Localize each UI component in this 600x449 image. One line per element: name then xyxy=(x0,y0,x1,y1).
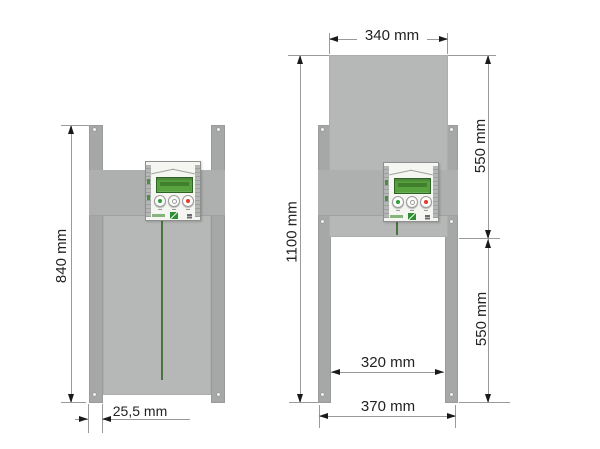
arrow-right-icon xyxy=(447,413,456,419)
white-dot-icon xyxy=(172,199,177,204)
white-dot-icon xyxy=(410,200,415,205)
guide-rail-left xyxy=(89,125,103,403)
dimension-label-550-upper: 550 mm xyxy=(473,113,489,179)
house-roof-icon xyxy=(172,169,195,175)
brand-text xyxy=(152,214,165,217)
dimension-label-840: 840 mm xyxy=(54,224,70,288)
extension-line xyxy=(459,238,500,239)
dimension-line xyxy=(102,419,190,420)
dimension-label-1100: 1100 mm xyxy=(285,195,301,270)
mounting-hole xyxy=(321,128,324,131)
open-button xyxy=(154,195,166,207)
dimension-label-340: 340 mm xyxy=(357,28,427,44)
house-roof-icon xyxy=(151,169,174,175)
mounting-hole xyxy=(93,128,96,131)
lcd-text xyxy=(398,183,427,187)
dimension-label-320: 320 mm xyxy=(353,355,423,371)
mounting-hole xyxy=(450,128,453,131)
mounting-hole xyxy=(217,128,220,131)
dimension-label-25-5: 25,5 mm xyxy=(106,403,174,419)
lcd-display xyxy=(394,178,431,194)
control-unit xyxy=(145,161,201,221)
dimension-drawing: 840 mm 25,5 mm xyxy=(0,0,600,449)
button-label xyxy=(158,209,162,210)
mounting-hole xyxy=(321,393,324,396)
mounting-hole xyxy=(321,220,324,223)
button-label xyxy=(396,210,400,211)
mounting-hole xyxy=(450,393,453,396)
dimension-label-370: 370 mm xyxy=(353,399,423,415)
lcd-display xyxy=(156,177,193,193)
arrow-up-icon xyxy=(485,239,491,248)
dimension-line xyxy=(331,372,444,373)
guide-rail-right xyxy=(211,125,225,403)
mounting-hole xyxy=(217,393,220,396)
mounting-hole xyxy=(93,393,96,396)
arrow-left-icon xyxy=(329,36,338,42)
mounting-hole xyxy=(450,220,453,223)
red-dot-icon xyxy=(424,200,428,204)
arrow-left-icon xyxy=(319,413,328,419)
arrow-up-icon xyxy=(68,125,74,134)
arrow-up-icon xyxy=(485,55,491,64)
extension-line xyxy=(61,125,89,126)
arrow-up-icon xyxy=(297,55,303,64)
arrow-right-icon xyxy=(435,369,444,375)
brand-text xyxy=(390,215,403,218)
extension-line xyxy=(61,402,86,403)
button-label xyxy=(410,210,414,211)
house-roof-icon xyxy=(410,170,433,176)
control-unit xyxy=(383,162,439,222)
button-label xyxy=(172,209,176,210)
close-button xyxy=(420,196,432,208)
model-marking xyxy=(425,215,430,217)
green-dot-icon xyxy=(158,199,162,203)
button-label xyxy=(186,209,190,210)
extension-line xyxy=(459,402,510,403)
dimension-line xyxy=(319,416,456,417)
model-marking xyxy=(187,214,192,216)
open-button xyxy=(392,196,404,208)
green-dot-icon xyxy=(396,200,400,204)
pull-cord xyxy=(161,220,163,380)
brand-logo xyxy=(170,212,178,219)
terminal-strip-right xyxy=(433,166,438,218)
button-label xyxy=(424,210,428,211)
lcd-text xyxy=(160,182,189,186)
close-button xyxy=(182,195,194,207)
terminal-strip-right xyxy=(195,165,200,217)
pull-cord xyxy=(396,222,398,235)
brand-logo xyxy=(408,213,416,220)
extension-line xyxy=(448,55,496,56)
menu-button xyxy=(168,195,180,207)
dimension-line xyxy=(71,125,72,403)
red-dot-icon xyxy=(186,199,190,203)
arrow-right-icon xyxy=(439,36,448,42)
dimension-label-550-lower: 550 mm xyxy=(474,286,490,352)
extension-line xyxy=(289,402,318,403)
menu-button xyxy=(406,196,418,208)
arrow-right-icon xyxy=(79,416,88,422)
extension-line xyxy=(88,404,89,433)
extension-line xyxy=(288,55,329,56)
house-roof-icon xyxy=(389,170,412,176)
arrow-left-icon xyxy=(331,369,340,375)
